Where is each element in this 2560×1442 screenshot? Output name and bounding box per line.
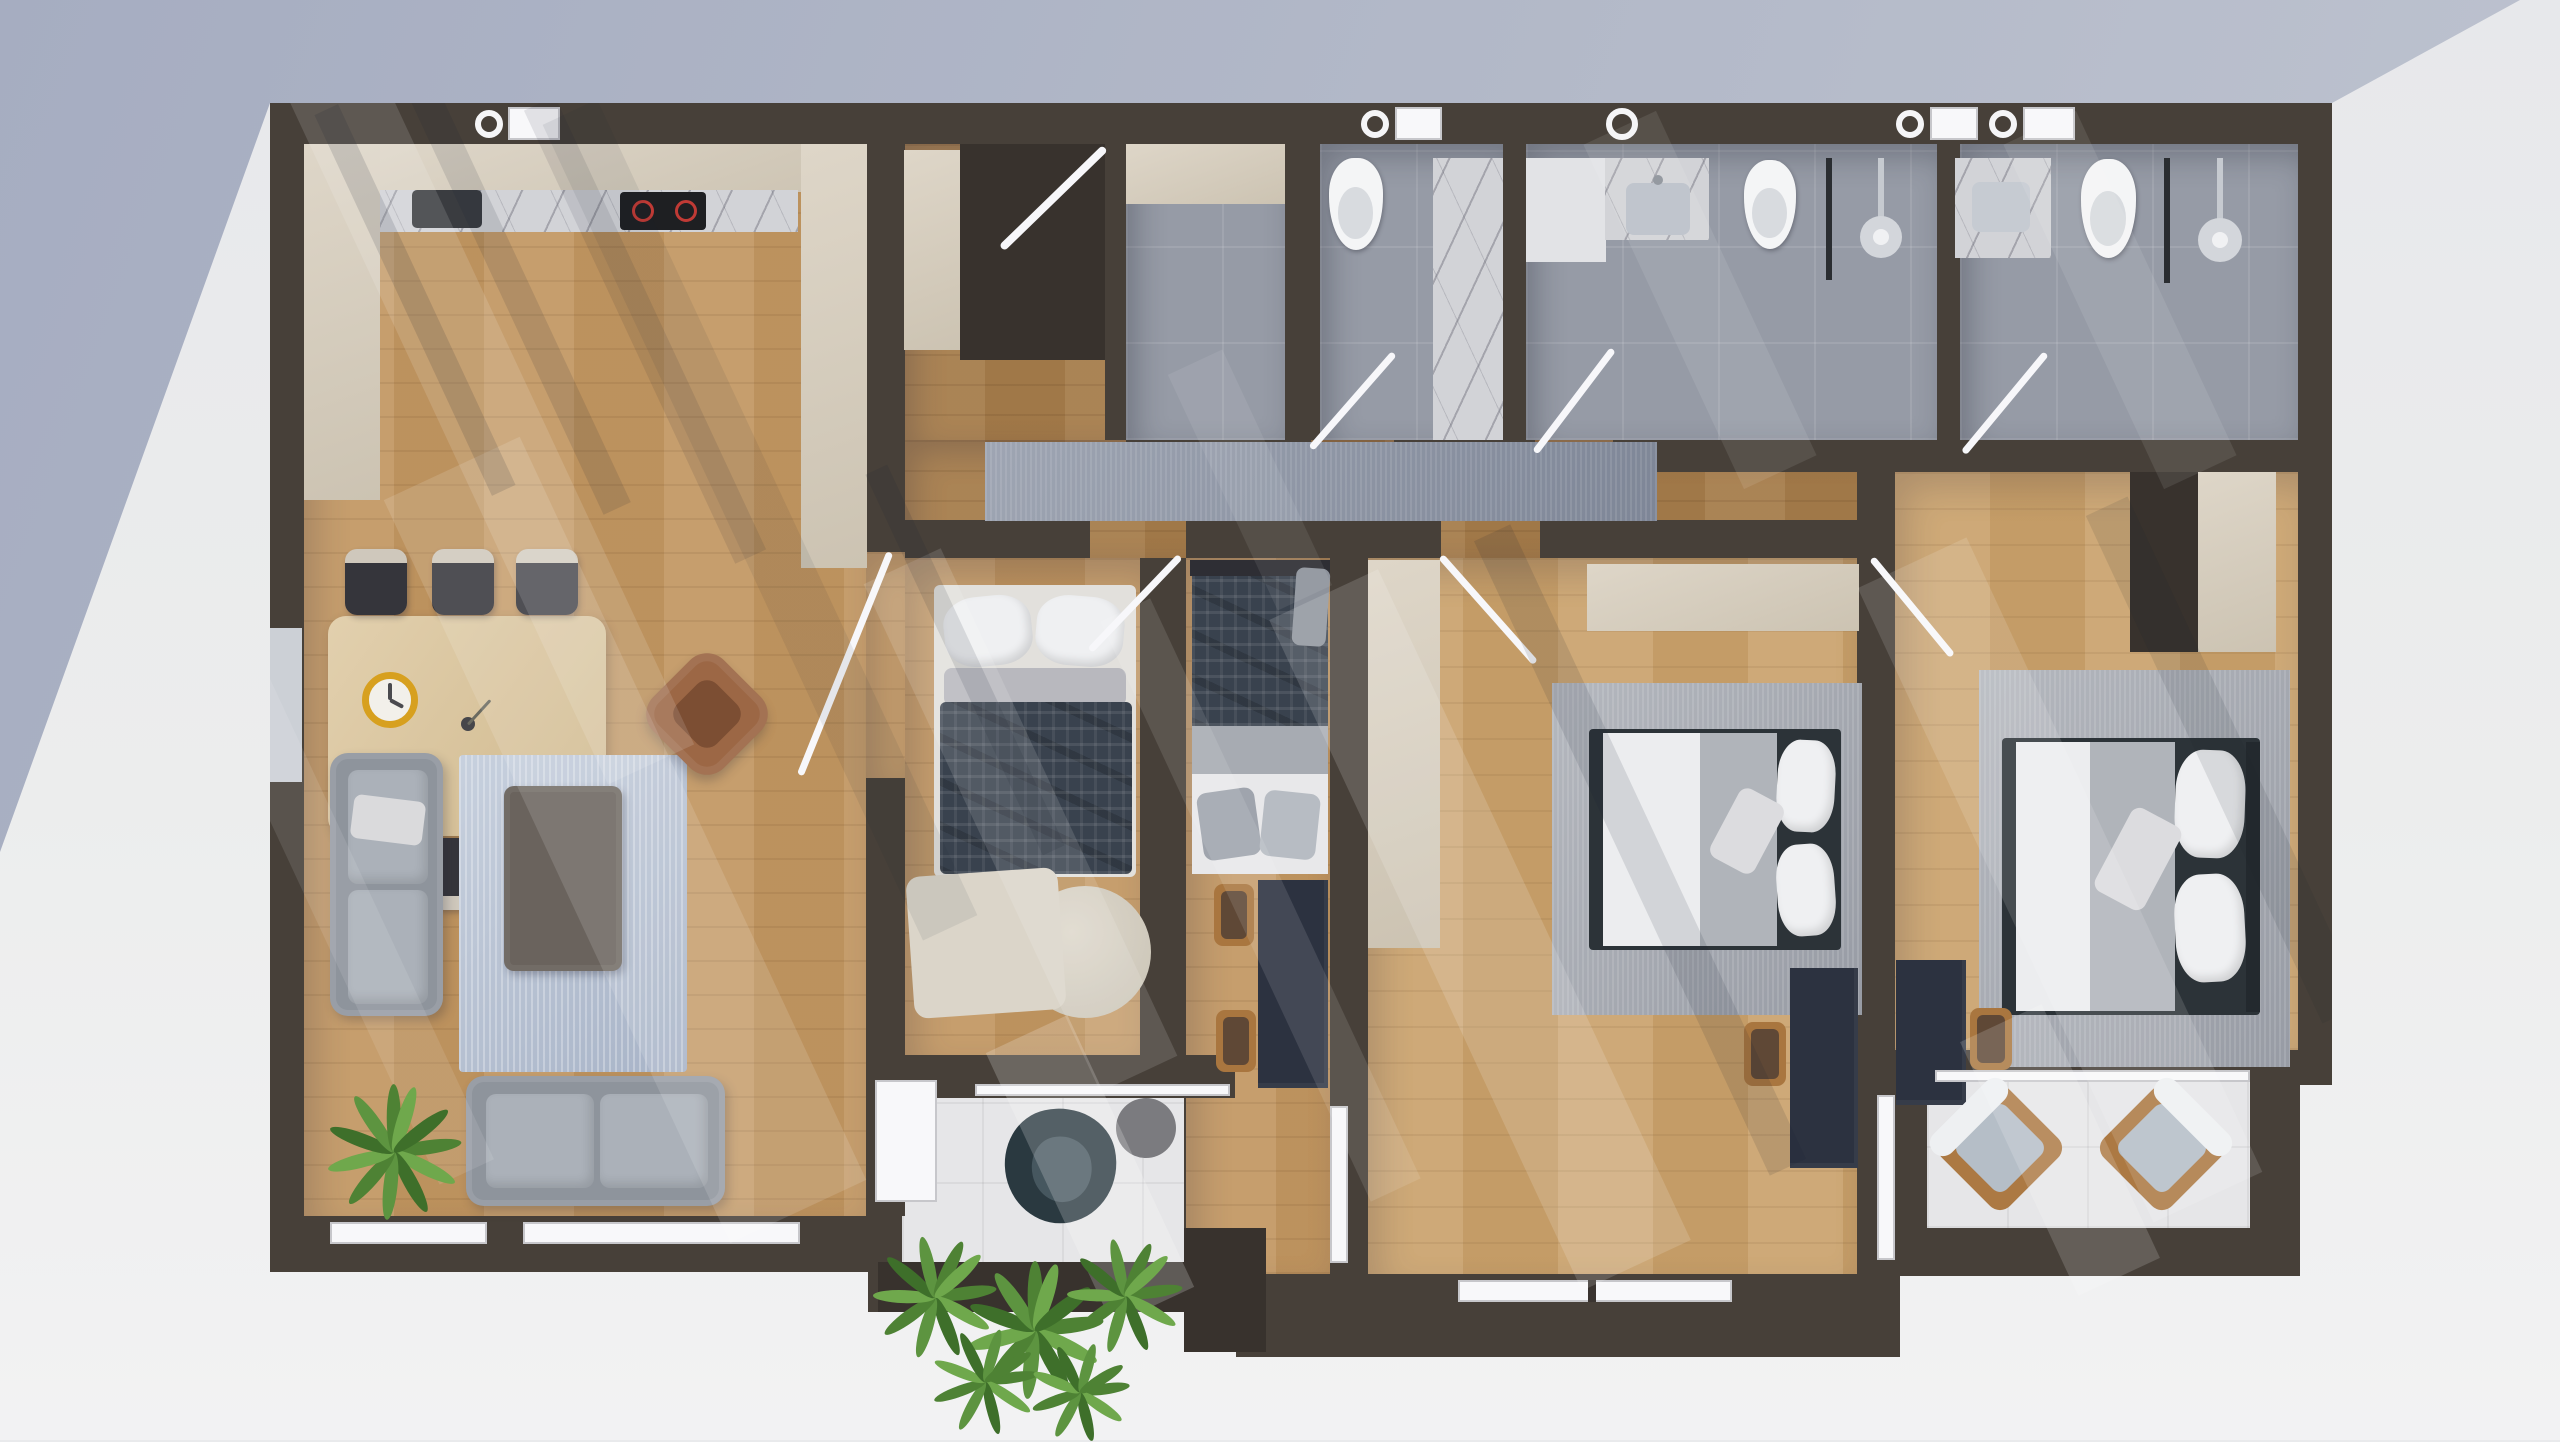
bath-b-shower-divider <box>1826 158 1832 280</box>
window-bed1-terrace <box>975 1084 1230 1096</box>
floor-plan-render <box>0 0 2560 1440</box>
planter-fern-3 <box>1123 1294 1127 1298</box>
bed2-stool-1 <box>1214 884 1254 946</box>
living-plant-fern <box>392 1150 396 1154</box>
bath-c-shower-drain <box>2212 232 2228 248</box>
window-handle-bath-c2 <box>1989 110 2017 138</box>
window-bath-c2 <box>2023 107 2075 140</box>
window-handle-bath-b <box>1361 110 1389 138</box>
dining-chair-2 <box>432 549 494 615</box>
kitchen-sink <box>412 190 482 228</box>
terrace-glass-door <box>875 1080 937 1202</box>
planter-fern-5 <box>1078 1390 1082 1394</box>
bed3-chair <box>1744 1022 1786 1086</box>
kitchen-counter-left <box>304 144 380 500</box>
bath-b-shower-arm <box>1878 158 1884 218</box>
master-desk <box>1896 960 1966 1105</box>
bed1-plaid-duvet <box>940 702 1132 874</box>
sofa-cushion-bottom <box>348 890 428 1004</box>
bed3-wardrobe-left <box>1368 560 1440 948</box>
wall-bath-bottom-3 <box>1613 440 1964 472</box>
window-master-side <box>1877 1095 1895 1260</box>
window-handle-kitchen <box>475 110 503 138</box>
bed3-desk <box>1790 968 1858 1168</box>
bed3-sheet-white <box>1603 733 1700 946</box>
wall-corridor-bottom-2 <box>1186 520 1441 558</box>
master-pillow-top <box>2173 749 2247 859</box>
loveseat-cushion-right <box>600 1094 708 1188</box>
wall-bed1-bed2 <box>1140 558 1186 1058</box>
terrace-corner-block <box>1184 1228 1266 1352</box>
coffee-table <box>504 786 622 971</box>
wall-wc-bath <box>1503 144 1526 440</box>
bed3-wardrobe-top <box>1587 564 1859 631</box>
wc-shower-marble <box>1433 158 1503 440</box>
entry-closet-door <box>904 150 960 350</box>
wall-storage-wc <box>1285 144 1320 440</box>
bed3-pillow-bottom <box>1774 842 1838 938</box>
sofa-throw-blanket <box>350 794 427 846</box>
window-bath-c1 <box>1930 107 1978 140</box>
planter-fern-1 <box>933 1296 937 1300</box>
wall-bath-bottom-4 <box>2047 440 2298 472</box>
bed2-pillow-2 <box>1259 789 1322 860</box>
window-handle-bath-c1 <box>1896 110 1924 138</box>
window-kitchen <box>508 107 560 140</box>
bed1-sheepskin-mat <box>905 867 1067 1019</box>
bed2-stool-2 <box>1216 1010 1256 1072</box>
bath-c-shower-arm <box>2217 158 2223 220</box>
storage-shelf <box>1126 144 1285 204</box>
master-sheet-white <box>2016 742 2090 1011</box>
master-pillow-bottom <box>2172 872 2248 984</box>
bath-c-shower-divider <box>2164 158 2170 283</box>
window-bed2-side <box>1330 1106 1348 1263</box>
loveseat-cushion-left <box>486 1094 594 1188</box>
corridor-runner-rug <box>985 442 1657 521</box>
clock-hand-minute <box>388 683 392 700</box>
window-living-left <box>270 628 302 782</box>
bath-b-sink <box>1626 183 1690 235</box>
bed2-pillow-1 <box>1196 786 1263 861</box>
balcony-frame-bottom <box>1900 1228 2300 1276</box>
stove-burner-left <box>632 200 654 222</box>
master-wardrobe-dark <box>2130 472 2198 652</box>
bed2-desk <box>1258 880 1328 1088</box>
window-master-balcony <box>1935 1070 2250 1082</box>
window-bath-b <box>1395 107 1442 140</box>
window-center-divider <box>1588 1280 1596 1302</box>
planter-fern-2 <box>1033 1328 1037 1332</box>
stove-burner-right <box>675 200 697 222</box>
planter-fern-4 <box>983 1380 987 1384</box>
wall-hall-storage <box>1105 144 1126 440</box>
bath-b-counter <box>1526 158 1606 262</box>
bed1-gray-band <box>944 668 1126 706</box>
window-handle-hall <box>1606 108 1638 140</box>
bath-b-faucet <box>1653 175 1663 185</box>
balcony-frame-right <box>2250 1075 2300 1276</box>
window-living-bottom-2 <box>523 1222 800 1244</box>
entry-closet <box>960 144 1126 360</box>
dining-chair-1 <box>345 549 407 615</box>
master-headboard <box>2246 742 2260 1012</box>
wall-corridor-bottom-1 <box>905 520 1090 558</box>
dining-chair-3 <box>516 549 578 615</box>
wall-living-right-upper <box>866 144 905 552</box>
window-living-bottom-1 <box>330 1222 487 1244</box>
master-wardrobe <box>2198 472 2276 652</box>
terrace-side-table <box>1116 1098 1176 1158</box>
wall-corridor-bottom-3 <box>1540 520 1857 558</box>
bath-b-shower-drain <box>1873 229 1889 245</box>
bed2-gray-band <box>1192 726 1328 774</box>
bed3-pillow-top <box>1775 739 1838 834</box>
kitchen-cabinet-right <box>801 144 867 568</box>
master-chair <box>1970 1008 2012 1070</box>
kitchen-counter-top <box>380 144 867 192</box>
bath-c-sink <box>1972 182 2030 232</box>
bed2-pillow-corner <box>1291 567 1330 647</box>
